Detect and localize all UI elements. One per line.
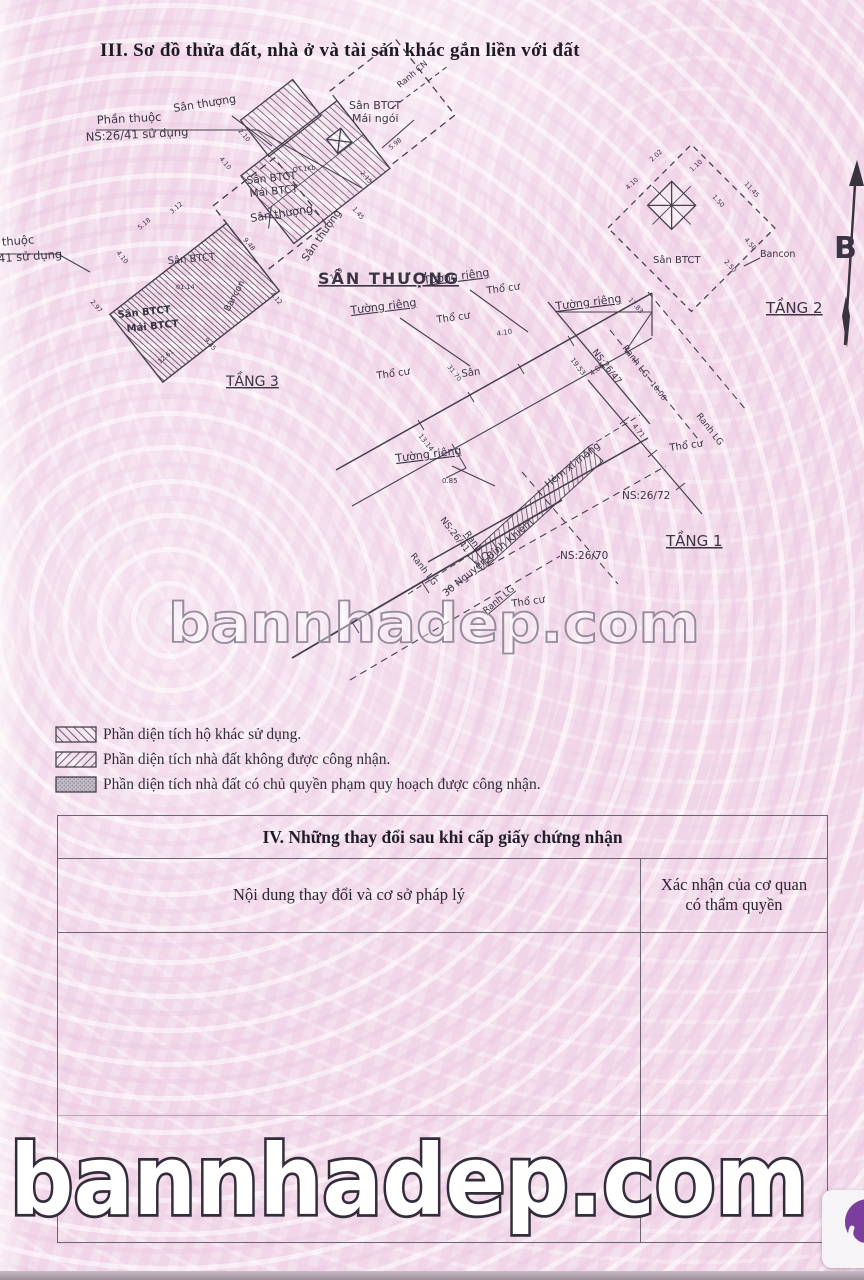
leader-lines xyxy=(0,66,760,486)
diagram-label: 2.10 xyxy=(236,127,251,143)
diagram-label: NS:26/47 xyxy=(590,348,623,387)
legend-item: Phần diện tích nhà đất có chủ quyền phạm… xyxy=(55,772,815,797)
diagram-label: 9.45 xyxy=(202,336,217,352)
legend-label: Phần diện tích nhà đất có chủ quyền phạm… xyxy=(103,776,541,794)
diagram-label: 4.08 xyxy=(588,362,605,378)
diagram-label: 2.97 xyxy=(88,298,103,314)
section3-title: III. Sơ đồ thửa đất, nhà ở và tài sản kh… xyxy=(100,40,700,62)
diagram-label: Sân BTCT xyxy=(246,170,297,187)
section4-title: IV. Những thay đổi sau khi cấp giấy chứn… xyxy=(58,816,827,859)
diagram-label: Thổ cư xyxy=(435,308,472,326)
diagram-label: Sân thượng xyxy=(172,92,236,115)
diagram-label: TẦNG 1 xyxy=(665,529,723,550)
diagram-label: 4.71 xyxy=(630,422,646,439)
diagram-label: Ranh LG xyxy=(694,412,725,448)
diagram-label: 30 Nguyễn Bỉnh Khiêm xyxy=(440,516,536,600)
diagram-labels: Sân thượngPhần thuộcNS:26/41 sử dụngSân … xyxy=(0,59,857,616)
diagram-label: 11.45 xyxy=(743,180,761,199)
diagram-label: 5.18 xyxy=(136,216,152,231)
diagram-label: SÂN THƯỢNG xyxy=(318,269,459,288)
diagram-label: NS:26/72 xyxy=(622,490,670,502)
diagram-label: 01.14 xyxy=(176,283,195,291)
row-divider xyxy=(58,1115,640,1116)
diagram-label: Mái BTCT xyxy=(249,183,299,200)
diagram-label: B xyxy=(834,231,857,266)
diagram-label: 3.12 xyxy=(168,200,184,215)
diagram-label: 17.83 xyxy=(627,296,645,315)
contact-icon xyxy=(822,1190,864,1268)
diagram-label: Sân BTCT xyxy=(349,99,401,112)
diagram-label: 19.53 xyxy=(568,356,587,377)
diagram-label: 4.10 xyxy=(217,155,232,171)
diagram-label: NS:26/41 sử dụng xyxy=(0,247,63,268)
legend-label: Phần diện tích hộ khác sử dụng. xyxy=(103,726,301,744)
floor-plan-tang-3 xyxy=(96,158,341,382)
legend-label: Phần diện tích nhà đất không được công n… xyxy=(103,751,390,769)
backslash-hatch-swatch xyxy=(55,726,97,743)
diagram-label: 0.85 xyxy=(442,477,458,485)
diagram-label: 4.50 xyxy=(743,236,759,252)
diagram-label: Sân BTCT xyxy=(653,254,701,266)
diagram-label: 1.50 xyxy=(711,193,727,209)
slash-hatch-swatch xyxy=(55,751,97,768)
legend-item: Phần diện tích nhà đất không được công n… xyxy=(55,747,815,772)
diagram-label: Phần thuộc xyxy=(0,233,35,251)
diagram-legend: Phần diện tích hộ khác sử dụng. Phần diệ… xyxy=(55,722,815,797)
diagram-label: Sân xyxy=(461,365,481,380)
diagram-label: Ranh LG xyxy=(620,344,651,380)
diagram-label: Ranh LG xyxy=(408,552,439,588)
diagram-label: TẦNG 3 xyxy=(225,371,279,390)
diagram-label: Sân thượng xyxy=(300,207,344,263)
section4-col2-header: Xác nhận của cơ quan có thẩm quyền xyxy=(641,858,827,933)
diagram-label: 2.15 xyxy=(358,169,373,185)
gray-fill-swatch xyxy=(55,776,97,793)
diagram-label: NS:26/70 xyxy=(560,550,608,562)
diagram-label: 1.45 xyxy=(350,205,365,221)
diagram-label: Thổ cư xyxy=(668,436,705,454)
diagram-label: OT.1Kb xyxy=(292,164,316,174)
north-arrow xyxy=(842,160,864,348)
row-divider xyxy=(641,1115,827,1116)
diagram-label: Tường riêng xyxy=(349,296,417,317)
diagram-label: 31.70 xyxy=(445,363,463,383)
diagram-label: Phần thuộc xyxy=(96,110,161,127)
diagram-label: 4.10 xyxy=(496,328,513,338)
diagram-label: Mái ngói xyxy=(352,112,399,125)
diagram-label: 1.10 xyxy=(688,158,704,174)
document-page: III. Sơ đồ thửa đất, nhà ở và tài sản kh… xyxy=(0,0,864,1280)
diagram-label: Hẻm xi măng xyxy=(542,440,602,491)
diagram-label: Tường riêng xyxy=(554,292,622,313)
diagram-label: Ranh CN xyxy=(462,530,494,567)
diagram-label: 2.02 xyxy=(648,148,664,164)
section4-col2: Xác nhận của cơ quan có thẩm quyền xyxy=(641,858,827,1242)
floor-plan-tang-2 xyxy=(608,145,775,312)
diagram-label: Bancon xyxy=(760,249,795,260)
diagram-label: Thổ cư xyxy=(510,592,547,610)
diagram-label: Sân thượng xyxy=(249,202,313,225)
diagram-label: Bancon xyxy=(223,279,248,313)
section4-col1: Nội dung thay đổi và cơ sở pháp lý xyxy=(58,858,641,1242)
floating-contact-icon[interactable] xyxy=(822,1190,864,1268)
diagram-label: 4.10 xyxy=(114,249,129,265)
diagram-label: Tường riêng xyxy=(422,266,490,287)
watermark-mid: bannhadep.com xyxy=(168,592,700,655)
diagram-label: Tường riêng xyxy=(394,444,462,465)
diagram-label: NS:26/41 xyxy=(438,516,471,555)
diagram-label: Ranh CN xyxy=(396,59,431,90)
diagram-label: 5.98 xyxy=(387,136,403,151)
diagram-label: Thổ cư xyxy=(375,364,412,382)
diagram-label: Thổ cư xyxy=(485,279,522,297)
section4-col1-header: Nội dung thay đổi và cơ sở pháp lý xyxy=(58,858,640,933)
diagram-label: NS:26/41 sử dụng xyxy=(85,125,188,144)
diagram-label: Mái BTCT xyxy=(126,318,179,335)
photo-bottom-edge xyxy=(0,1271,864,1280)
section4-table: IV. Những thay đổi sau khi cấp giấy chứn… xyxy=(57,815,828,1243)
diagram-label: 10.00 xyxy=(648,380,668,403)
legend-item: Phần diện tích hộ khác sử dụng. xyxy=(55,722,815,747)
diagram-label: 12.61 xyxy=(156,347,175,365)
diagram-label: 4.12 xyxy=(268,290,283,306)
diagram-label: Sân BTCT xyxy=(167,251,216,267)
site-plan-tang-1 xyxy=(292,292,746,680)
diagram-label: 2.50 xyxy=(723,258,739,274)
diagram-label: 9.48 xyxy=(241,236,256,252)
diagram-label: 13.14 xyxy=(416,432,435,453)
diagram-label: 7.59 xyxy=(328,266,344,281)
diagram-label: 4.10 xyxy=(624,176,640,192)
diagram-label: Ranh LG xyxy=(482,584,517,616)
diagram-label: TẦNG 2 xyxy=(765,296,823,317)
diagram-label: Sân BTCT xyxy=(117,303,171,321)
